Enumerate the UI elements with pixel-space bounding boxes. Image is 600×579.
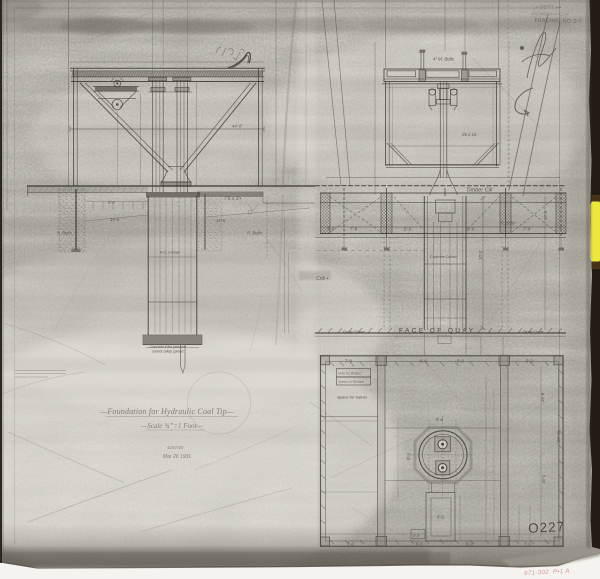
svg-text:Concrete if the pressure: Concrete if the pressure: [150, 345, 186, 349]
svg-text:10'-0: 10'-0: [478, 250, 483, 260]
svg-text:7'-0: 7'-0: [524, 542, 532, 547]
svg-text:4” M. Bolts: 4” M. Bolts: [433, 57, 455, 62]
svg-text:Hole for Bollard: Hole for Bollard: [338, 372, 361, 376]
svg-text:3'-0: 3'-0: [327, 227, 335, 232]
svg-text:6'-0: 6'-0: [404, 227, 412, 232]
svg-text:5'-4: 5'-4: [406, 452, 411, 460]
svg-text:44'-0”: 44'-0”: [232, 124, 243, 129]
svg-text:DO NOT ▪▪▪ ▪▪ CL▪▪▪: DO NOT ▪▪▪ ▪▪ CL▪▪▪: [532, 11, 570, 17]
svg-text:—Foundation for Hydraulic Coal: —Foundation for Hydraulic Coal Tip—: [99, 407, 235, 416]
svg-text:—Scale ¾”=1 Foot—: —Scale ¾”=1 Foot—: [140, 422, 203, 430]
svg-text:6'-5: 6'-5: [437, 515, 445, 520]
svg-text:R. Bolts: R. Bolts: [247, 231, 263, 236]
svg-text:Sketch of Bollard: Sketch of Bollard: [338, 380, 364, 384]
svg-text:7'-0: 7'-0: [347, 542, 355, 547]
svg-text:5'-0: 5'-0: [526, 359, 534, 364]
svg-text:4157/43: 4157/43: [167, 445, 184, 450]
svg-text:Space for Valves: Space for Valves: [337, 395, 367, 400]
svg-text:7'-9: 7'-9: [345, 359, 353, 364]
svg-text:15'-6: 15'-6: [216, 218, 226, 223]
svg-text:Quay Cope: Quay Cope: [523, 329, 544, 334]
svg-text:FACE OF QUAY: FACE OF QUAY: [399, 328, 475, 335]
svg-text:6'-0: 6'-0: [467, 227, 475, 232]
svg-text:4'-0: 4'-0: [108, 200, 116, 205]
svg-text:Concrete Curtain: Concrete Curtain: [430, 255, 457, 259]
svg-text:▪ DEPT ▪▪▪: ▪ DEPT ▪▪▪: [536, 5, 562, 11]
svg-text:6'-0: 6'-0: [420, 359, 428, 364]
svg-text:Quay Crane: Quay Crane: [343, 329, 365, 334]
svg-text:25'-16: 25'-16: [556, 430, 561, 442]
svg-text:R.C. Curtain: R.C. Curtain: [160, 251, 180, 255]
svg-text:O227: O227: [528, 519, 566, 536]
svg-text:26 x 16: 26 x 16: [461, 132, 477, 137]
svg-text:Timber Cill: Timber Cill: [466, 188, 493, 194]
svg-text:10'-0: 10'-0: [543, 210, 548, 220]
svg-text:2'-0: 2'-0: [413, 534, 419, 538]
svg-text:Mar 26⁭ 1931: Mar 26⁭ 1931: [163, 454, 191, 460]
svg-text:R. Bolts: R. Bolts: [57, 231, 73, 236]
svg-text:16'-1: 16'-1: [541, 474, 546, 484]
svg-text:7'6 x 3'▪: 7'6 x 3'▪: [224, 196, 242, 202]
svg-text:cannot safely spread: cannot safely spread: [152, 350, 183, 354]
svg-text:7'-9: 7'-9: [523, 227, 531, 232]
svg-text:7'-9: 7'-9: [350, 227, 358, 232]
svg-text:6'-0: 6'-0: [457, 359, 465, 364]
svg-text:6'-0: 6'-0: [416, 542, 424, 547]
svg-text:16'-6: 16'-6: [540, 392, 545, 402]
svg-text:6'-0: 6'-0: [466, 542, 474, 547]
svg-text:R. Bolts: R. Bolts: [500, 221, 516, 226]
svg-text:5'-2: 5'-2: [436, 417, 444, 422]
svg-text:TRACING NO 2▪7: TRACING NO 2▪7: [534, 18, 582, 25]
